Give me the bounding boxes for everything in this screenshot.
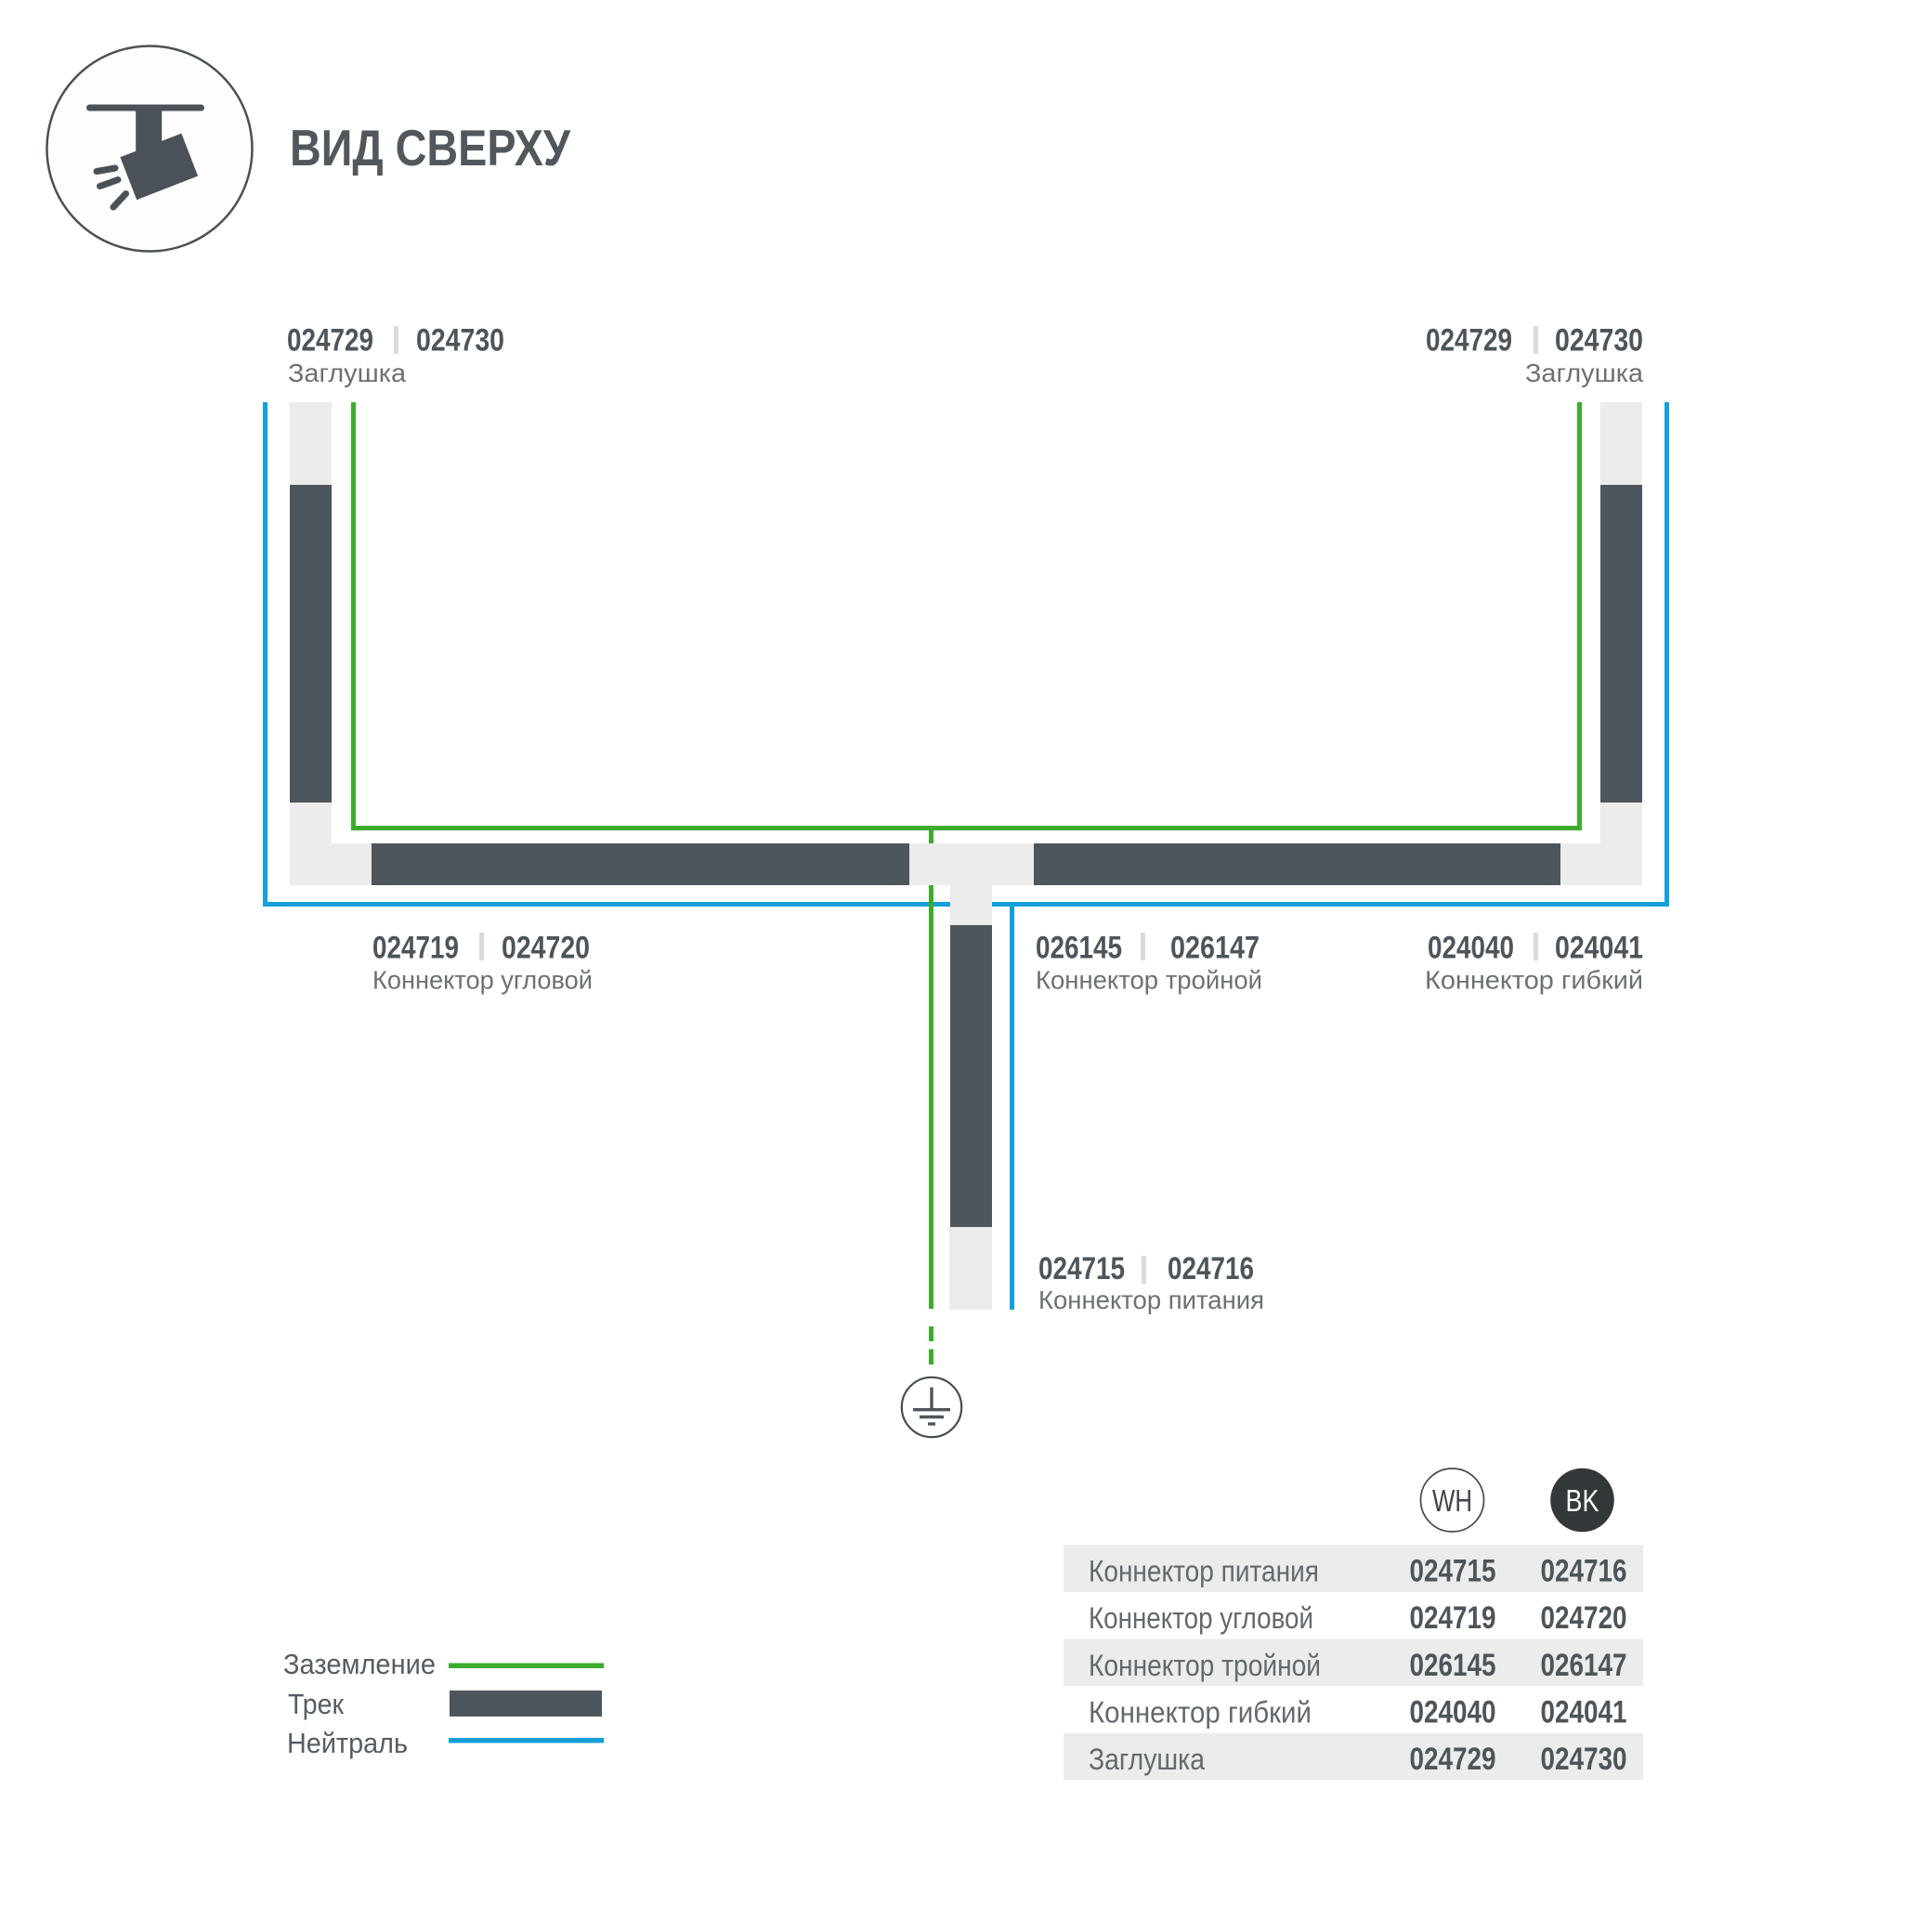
svg-text:Коннектор гибкий: Коннектор гибкий (1425, 966, 1643, 995)
svg-text:026147: 026147 (1541, 1648, 1627, 1683)
svg-text:024730: 024730 (416, 323, 504, 359)
svg-text:024716: 024716 (1541, 1554, 1627, 1589)
svg-text:024729: 024729 (1410, 1742, 1496, 1777)
svg-text:WH: WH (1432, 1483, 1472, 1518)
svg-text:Заглушка: Заглушка (288, 359, 406, 387)
svg-text:ВИД СВЕРХУ: ВИД СВЕРХУ (290, 119, 571, 176)
svg-text:Коннектор питания: Коннектор питания (1038, 1286, 1264, 1314)
svg-text:Коннектор гибкий: Коннектор гибкий (1089, 1695, 1312, 1729)
svg-text:Заглушка: Заглушка (1525, 359, 1643, 387)
svg-text:024729: 024729 (1426, 323, 1512, 359)
svg-text:Коннектор тройной: Коннектор тройной (1036, 966, 1262, 995)
svg-text:024719: 024719 (372, 931, 459, 966)
svg-text:Заземление: Заземление (283, 1648, 436, 1680)
svg-text:024730: 024730 (1555, 323, 1643, 359)
svg-text:024730: 024730 (1541, 1742, 1627, 1777)
svg-text:024715: 024715 (1038, 1251, 1125, 1286)
svg-text:024041: 024041 (1541, 1694, 1627, 1730)
svg-text:Коннектор тройной: Коннектор тройной (1089, 1649, 1321, 1682)
svg-text:024729: 024729 (287, 323, 373, 359)
svg-text:024720: 024720 (1541, 1600, 1627, 1636)
svg-text:026145: 026145 (1410, 1648, 1496, 1683)
svg-text:024040: 024040 (1428, 931, 1514, 966)
svg-text:024719: 024719 (1410, 1600, 1496, 1636)
svg-text:024720: 024720 (502, 931, 590, 966)
svg-text:Трек: Трек (288, 1688, 344, 1720)
svg-text:024040: 024040 (1410, 1694, 1496, 1730)
svg-text:Нейтраль: Нейтраль (287, 1727, 408, 1759)
svg-text:024041: 024041 (1555, 931, 1643, 966)
svg-text:026145: 026145 (1036, 931, 1122, 966)
svg-text:Коннектор питания: Коннектор питания (1089, 1555, 1319, 1588)
svg-text:024716: 024716 (1168, 1251, 1254, 1286)
svg-text:Коннектор угловой: Коннектор угловой (372, 966, 593, 995)
svg-text:Коннектор угловой: Коннектор угловой (1089, 1601, 1313, 1635)
svg-text:026147: 026147 (1170, 931, 1260, 966)
svg-text:024715: 024715 (1410, 1554, 1496, 1589)
svg-text:BK: BK (1566, 1483, 1599, 1518)
svg-text:Заглушка: Заглушка (1089, 1743, 1205, 1776)
